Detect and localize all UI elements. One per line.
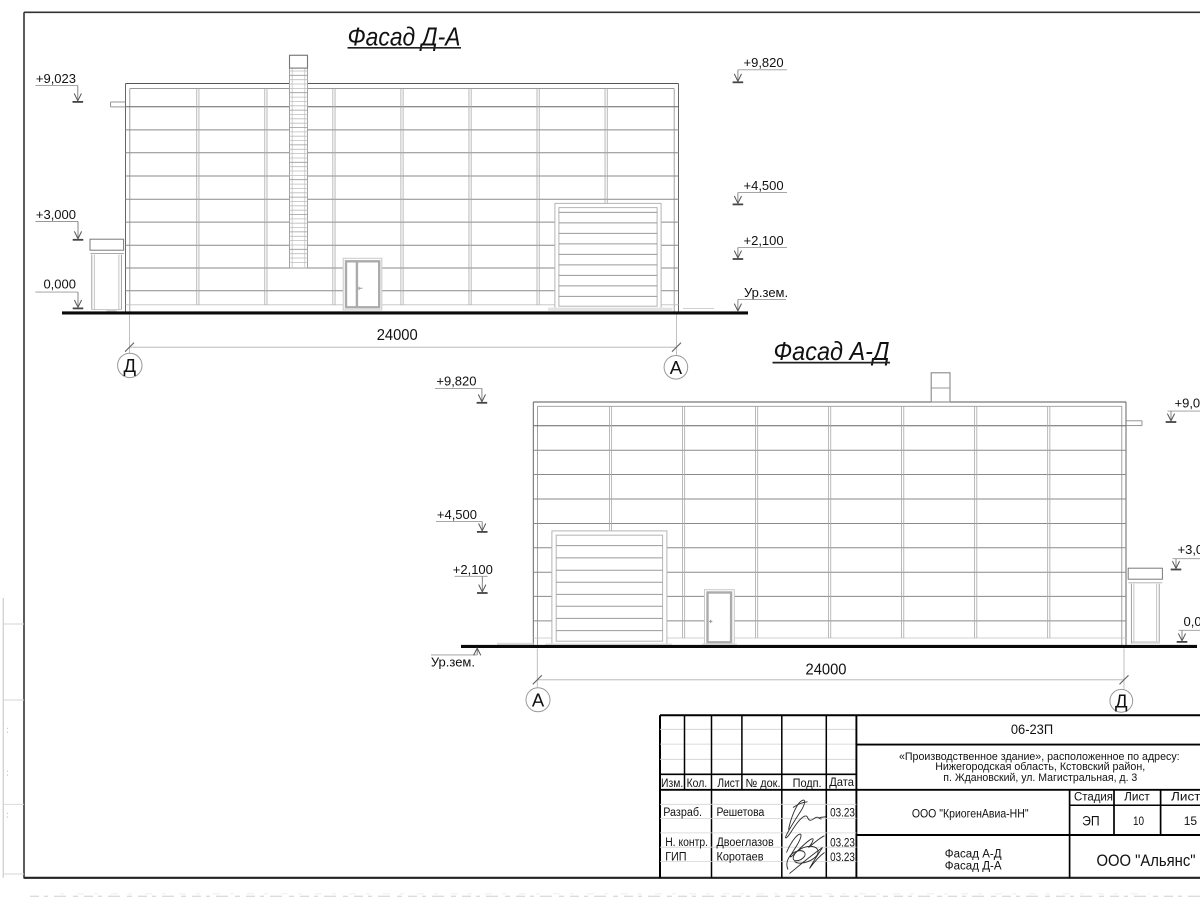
svg-text:. .: . . [3, 812, 10, 818]
svg-text:Кол.: Кол. [687, 776, 708, 790]
svg-text:ЭП: ЭП [1082, 814, 1100, 829]
svg-text:Изм.: Изм. [661, 776, 683, 790]
svg-text:+9,023: +9,023 [36, 71, 76, 86]
svg-text:Ур.зем.: Ур.зем. [431, 655, 475, 670]
svg-text:ГИП: ГИП [665, 851, 686, 863]
svg-text:+3,000: +3,000 [36, 207, 76, 222]
svg-text:Решетова: Решетова [717, 807, 765, 819]
svg-text:Лист: Лист [717, 776, 740, 790]
svg-text:+3,000: +3,000 [1178, 542, 1200, 557]
svg-text:А: А [532, 689, 545, 710]
svg-text:03.23: 03.23 [830, 852, 855, 864]
svg-text:ООО "Альянс": ООО "Альянс" [1097, 851, 1196, 870]
svg-text:03.23: 03.23 [830, 837, 855, 849]
svg-text:Лист: Лист [1124, 792, 1150, 804]
svg-text:+9,820: +9,820 [744, 55, 784, 70]
svg-text:Ур.зем.: Ур.зем. [744, 285, 788, 300]
svg-text:0,000: 0,000 [1184, 614, 1200, 629]
svg-text:0,000: 0,000 [43, 277, 76, 292]
svg-text:Д: Д [1115, 690, 1128, 711]
svg-text:Д: Д [124, 355, 137, 376]
svg-text:Фасад А-Д: Фасад А-Д [774, 336, 890, 366]
svg-text:. .: . . [3, 770, 10, 776]
svg-text:п. Ждановский, ул. Магистральн: п. Ждановский, ул. Магистральная, д. 3 [943, 772, 1137, 784]
svg-text:Двоеглазов: Двоеглазов [717, 837, 774, 849]
svg-text:10: 10 [1133, 814, 1144, 828]
svg-text:Н. контр.: Н. контр. [665, 837, 708, 849]
svg-text:Листов: Листов [1171, 792, 1200, 804]
svg-text:+9,023: +9,023 [1175, 396, 1200, 411]
svg-text:24000: 24000 [806, 661, 847, 678]
svg-text:24000: 24000 [377, 327, 418, 344]
svg-text:+4,500: +4,500 [437, 507, 477, 522]
svg-text:Разраб.: Разраб. [663, 807, 702, 819]
svg-text:. .: . . [3, 727, 10, 733]
svg-text:ООО "КриогенАвиа-НН": ООО "КриогенАвиа-НН" [912, 806, 1029, 820]
svg-text:03.23: 03.23 [830, 807, 855, 819]
svg-text:Подп.: Подп. [793, 776, 822, 790]
svg-text:Коротаев: Коротаев [717, 851, 764, 863]
svg-text:+2,100: +2,100 [453, 562, 493, 577]
svg-text:№ док.: № док. [746, 776, 781, 790]
svg-text:+4,500: +4,500 [744, 178, 784, 193]
svg-text:Фасад Д-А: Фасад Д-А [348, 21, 461, 51]
svg-text:Дата: Дата [829, 775, 854, 789]
svg-text:Фасад Д-А: Фасад Д-А [945, 860, 1002, 872]
svg-text:Стадия: Стадия [1074, 792, 1113, 804]
svg-text:А: А [670, 357, 683, 378]
svg-text:Фасад А-Д: Фасад А-Д [945, 849, 1002, 861]
svg-text:+2,100: +2,100 [744, 233, 784, 248]
svg-text:06-23П: 06-23П [1011, 722, 1053, 737]
svg-text:+9,820: +9,820 [436, 374, 476, 389]
svg-text:15: 15 [1184, 814, 1198, 828]
